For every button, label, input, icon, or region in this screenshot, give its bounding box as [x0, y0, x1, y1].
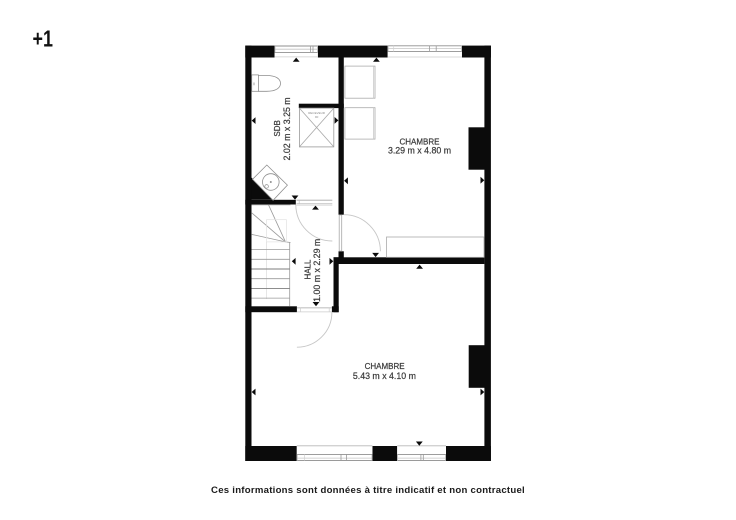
svg-text:+1: +1 — [33, 26, 53, 52]
svg-text:CHAMBRE: CHAMBRE — [365, 362, 405, 371]
svg-text:5.43 m x 4.10 m: 5.43 m x 4.10 m — [353, 371, 416, 381]
svg-text:3.29 m x 4.80 m: 3.29 m x 4.80 m — [388, 145, 451, 155]
svg-text:SDB: SDB — [273, 120, 282, 136]
svg-text:2.02 m x 3.25 m: 2.02 m x 3.25 m — [282, 97, 292, 160]
svg-text:Ces informations sont données: Ces informations sont données à titre in… — [211, 485, 525, 496]
svg-text:1.00 m x 2.29 m: 1.00 m x 2.29 m — [312, 239, 322, 302]
svg-text:90: 90 — [315, 115, 319, 119]
